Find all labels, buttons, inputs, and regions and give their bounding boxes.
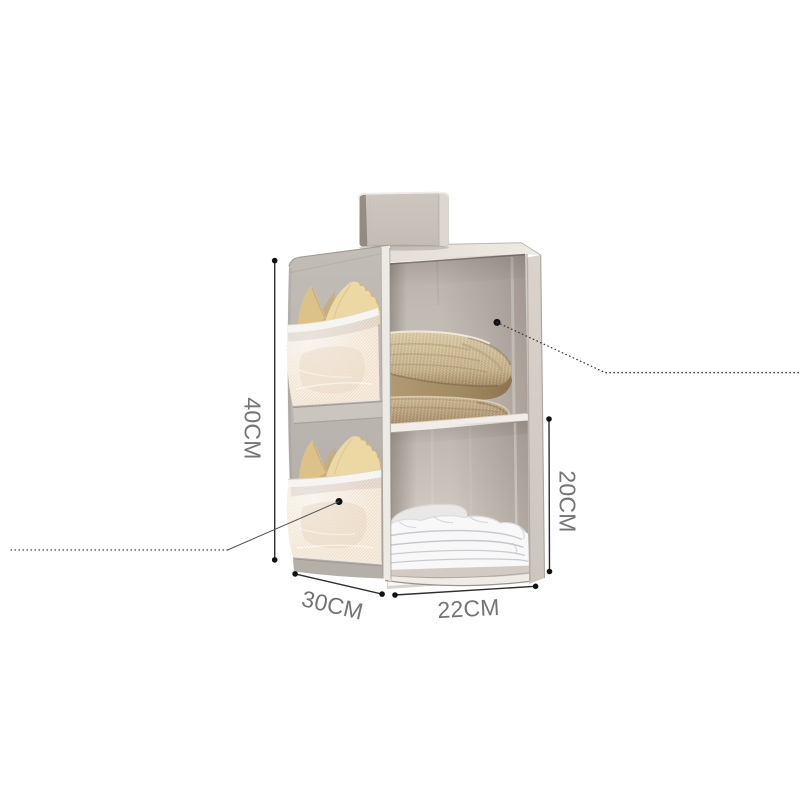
svg-text:22CM: 22CM	[437, 594, 500, 623]
svg-text:40CM: 40CM	[240, 397, 266, 459]
svg-text:20CM: 20CM	[555, 470, 581, 532]
